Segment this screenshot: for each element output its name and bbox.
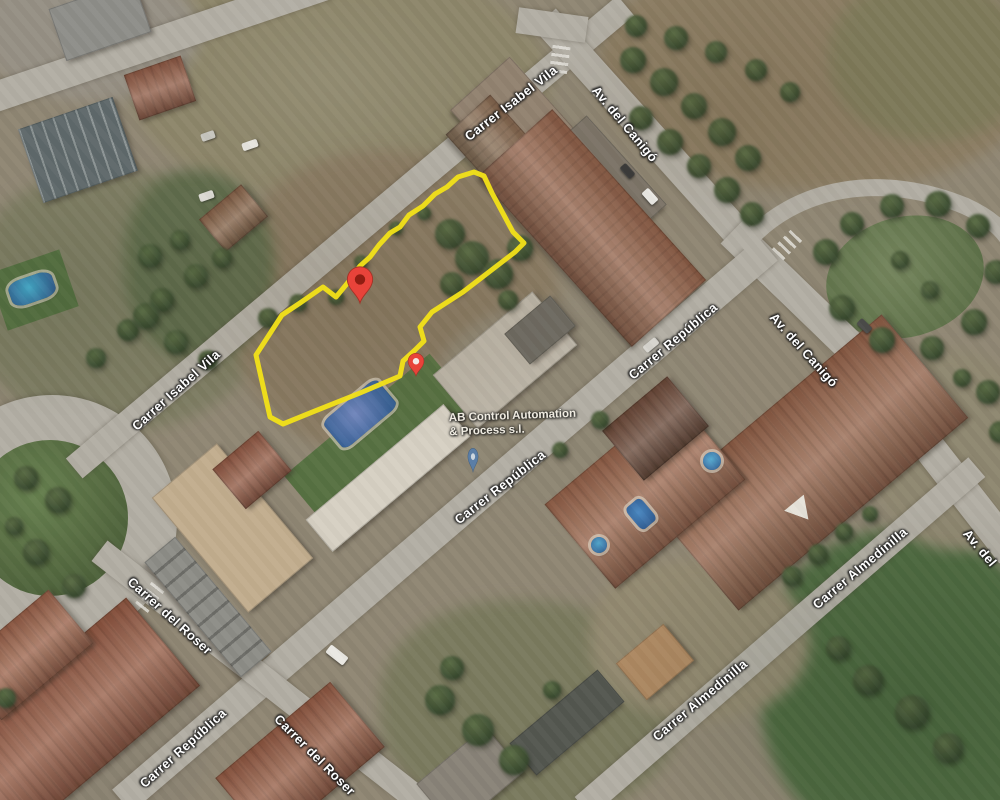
secondary-pin[interactable] [408,353,424,376]
map-annotations [0,0,1000,800]
business-label[interactable]: AB Control Automation & Process s.l. [449,407,577,439]
destination-pin[interactable] [347,267,372,303]
business-pin[interactable] [468,448,478,472]
satellite-map-view: Carrer Isabel VilaAv. del CanigóCarrer I… [0,0,1000,800]
parcel-outline [256,172,524,424]
